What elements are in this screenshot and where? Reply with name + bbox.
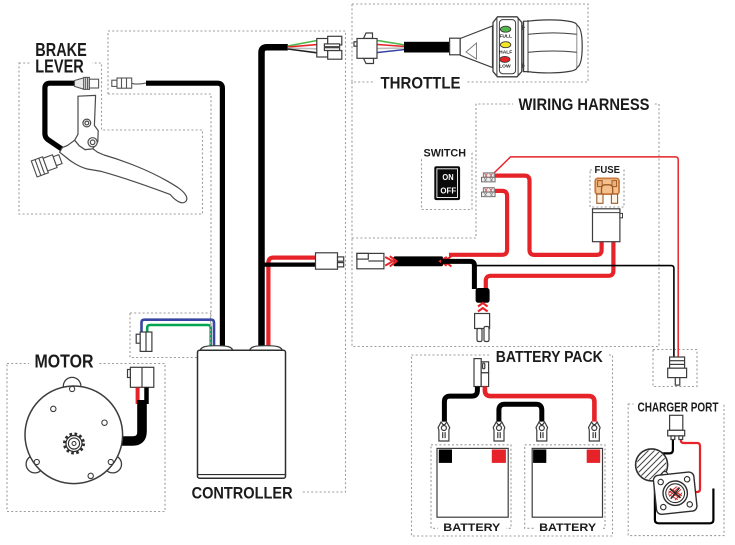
svg-text:BATTERY: BATTERY [539,522,597,534]
svg-text:SWITCH: SWITCH [424,148,467,160]
svg-text:OFF: OFF [440,186,456,196]
svg-text:WIRING HARNESS: WIRING HARNESS [519,95,650,114]
svg-text:LOW: LOW [499,63,511,69]
svg-text:ON: ON [442,172,453,182]
svg-text:CHARGER PORT: CHARGER PORT [638,400,719,415]
svg-text:CONTROLLER: CONTROLLER [192,484,293,503]
svg-text:BATTERY PACK: BATTERY PACK [496,349,604,366]
svg-text:FULL: FULL [499,33,512,39]
svg-text:LEVER: LEVER [35,56,84,77]
svg-text:BATTERY: BATTERY [443,522,501,534]
svg-text:HALF: HALF [499,49,512,55]
svg-text:THROTTLE: THROTTLE [381,73,461,92]
svg-text:FUSE: FUSE [595,165,621,176]
svg-text:MOTOR: MOTOR [35,352,94,372]
